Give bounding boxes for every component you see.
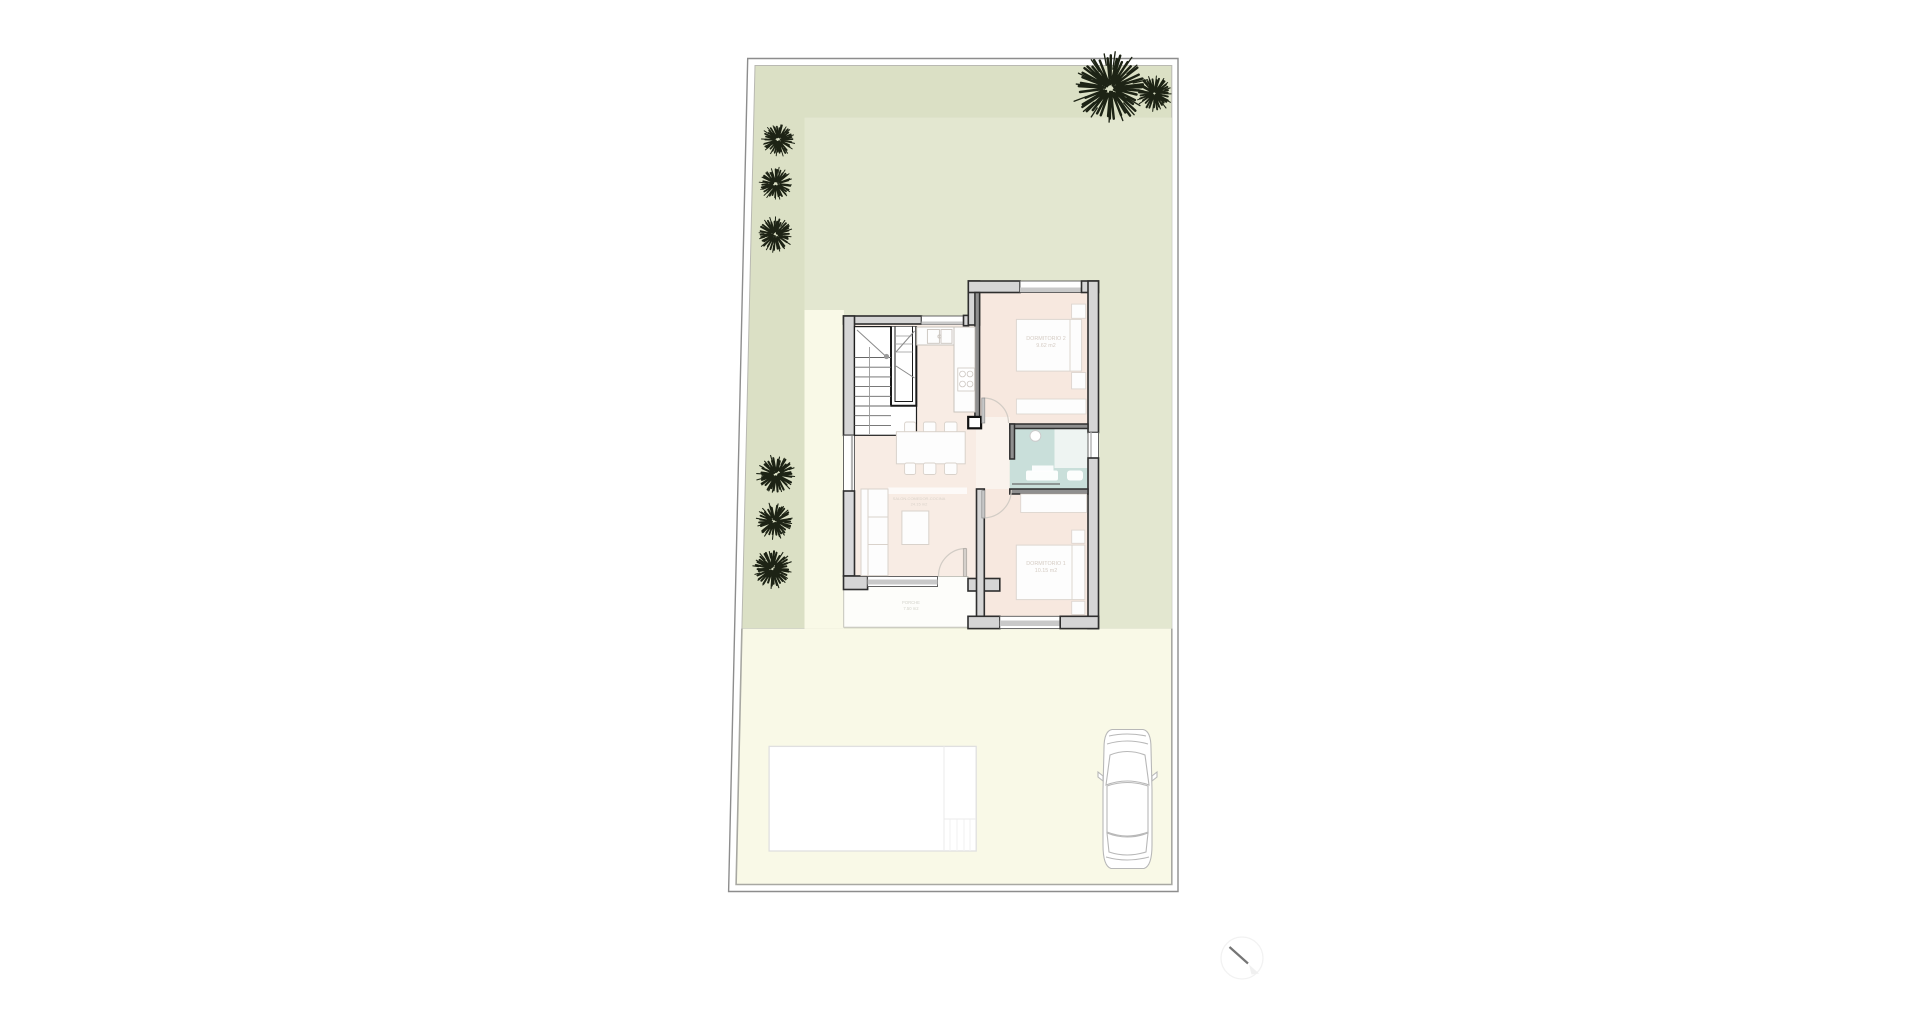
svg-text:DORMITORIO 1: DORMITORIO 1: [1026, 561, 1065, 567]
svg-text:24.15 m2: 24.15 m2: [911, 502, 928, 507]
svg-text:7.50 m2: 7.50 m2: [903, 606, 919, 611]
svg-text:PORCHE: PORCHE: [902, 600, 920, 605]
svg-text:10.15 m2: 10.15 m2: [1035, 568, 1057, 574]
svg-text:DORMITORIO 2: DORMITORIO 2: [1026, 336, 1065, 342]
svg-text:9.62 m2: 9.62 m2: [1036, 343, 1055, 349]
svg-text:SALON-COMEDOR-COCINA: SALON-COMEDOR-COCINA: [893, 496, 946, 501]
